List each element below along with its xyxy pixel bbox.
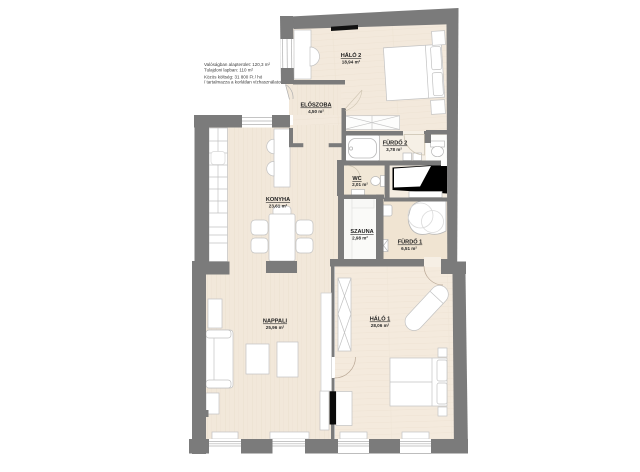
svg-text:18,94 m²: 18,94 m² — [342, 60, 361, 65]
svg-text:HÁLÓ 2: HÁLÓ 2 — [341, 51, 362, 59]
svg-text:3,78 m²: 3,78 m² — [386, 147, 402, 152]
svg-text:NAPPALI: NAPPALI — [263, 319, 288, 325]
svg-text:25,96 m²: 25,96 m² — [266, 325, 285, 330]
svg-text:2,98 m²: 2,98 m² — [352, 236, 368, 241]
svg-text:HÁLÓ 1: HÁLÓ 1 — [370, 315, 391, 323]
svg-text:FÜRDŐ 2: FÜRDŐ 2 — [383, 140, 408, 147]
svg-text:FÜRDŐ 1: FÜRDŐ 1 — [398, 239, 423, 246]
svg-text:Valóságban alapterület: 120,3: Valóságban alapterület: 120,3 m² — [204, 62, 270, 67]
svg-text:Tulajdoni lapban: 110 m²: Tulajdoni lapban: 110 m² — [204, 68, 254, 73]
svg-text:2,01 m²: 2,01 m² — [352, 182, 368, 187]
svg-text:/ tartalmazza a korlátlan vízh: / tartalmazza a korlátlan vízhasználatot… — [204, 80, 284, 85]
svg-text:6,51 m²: 6,51 m² — [401, 246, 417, 251]
svg-text:KONYHA: KONYHA — [266, 197, 290, 203]
svg-text:SZAUNA: SZAUNA — [350, 229, 373, 235]
svg-text:23,61 m²: 23,61 m² — [269, 204, 288, 209]
svg-text:4,50 m²: 4,50 m² — [308, 109, 324, 114]
svg-text:28,06 m²: 28,06 m² — [371, 323, 390, 328]
svg-text:ELŐSZOBA: ELŐSZOBA — [300, 102, 331, 109]
